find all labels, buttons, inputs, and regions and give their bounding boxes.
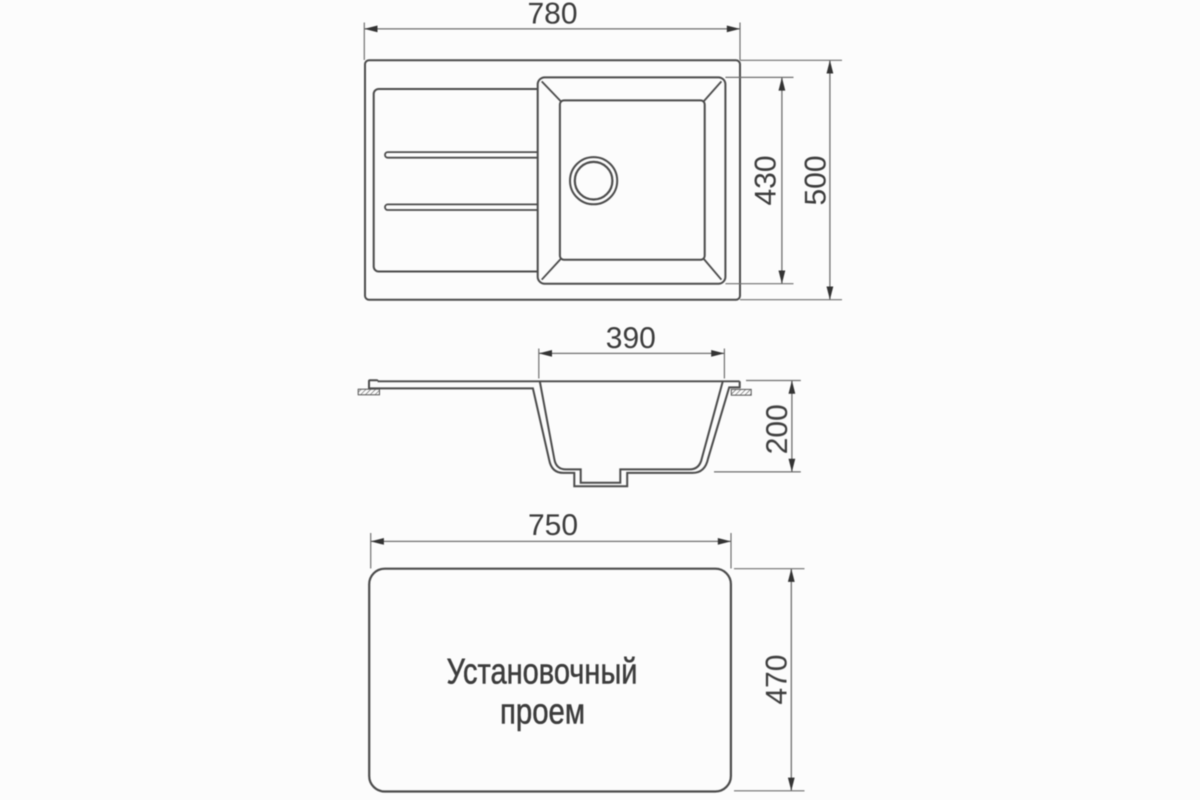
svg-text:проем: проем [500,690,585,731]
svg-text:200: 200 [761,404,794,454]
svg-text:500: 500 [800,155,833,205]
svg-text:390: 390 [606,322,656,355]
svg-text:470: 470 [761,655,794,705]
svg-text:750: 750 [528,509,578,542]
svg-text:Установочный: Установочный [447,651,638,692]
svg-text:780: 780 [527,0,577,31]
svg-text:430: 430 [750,155,783,205]
